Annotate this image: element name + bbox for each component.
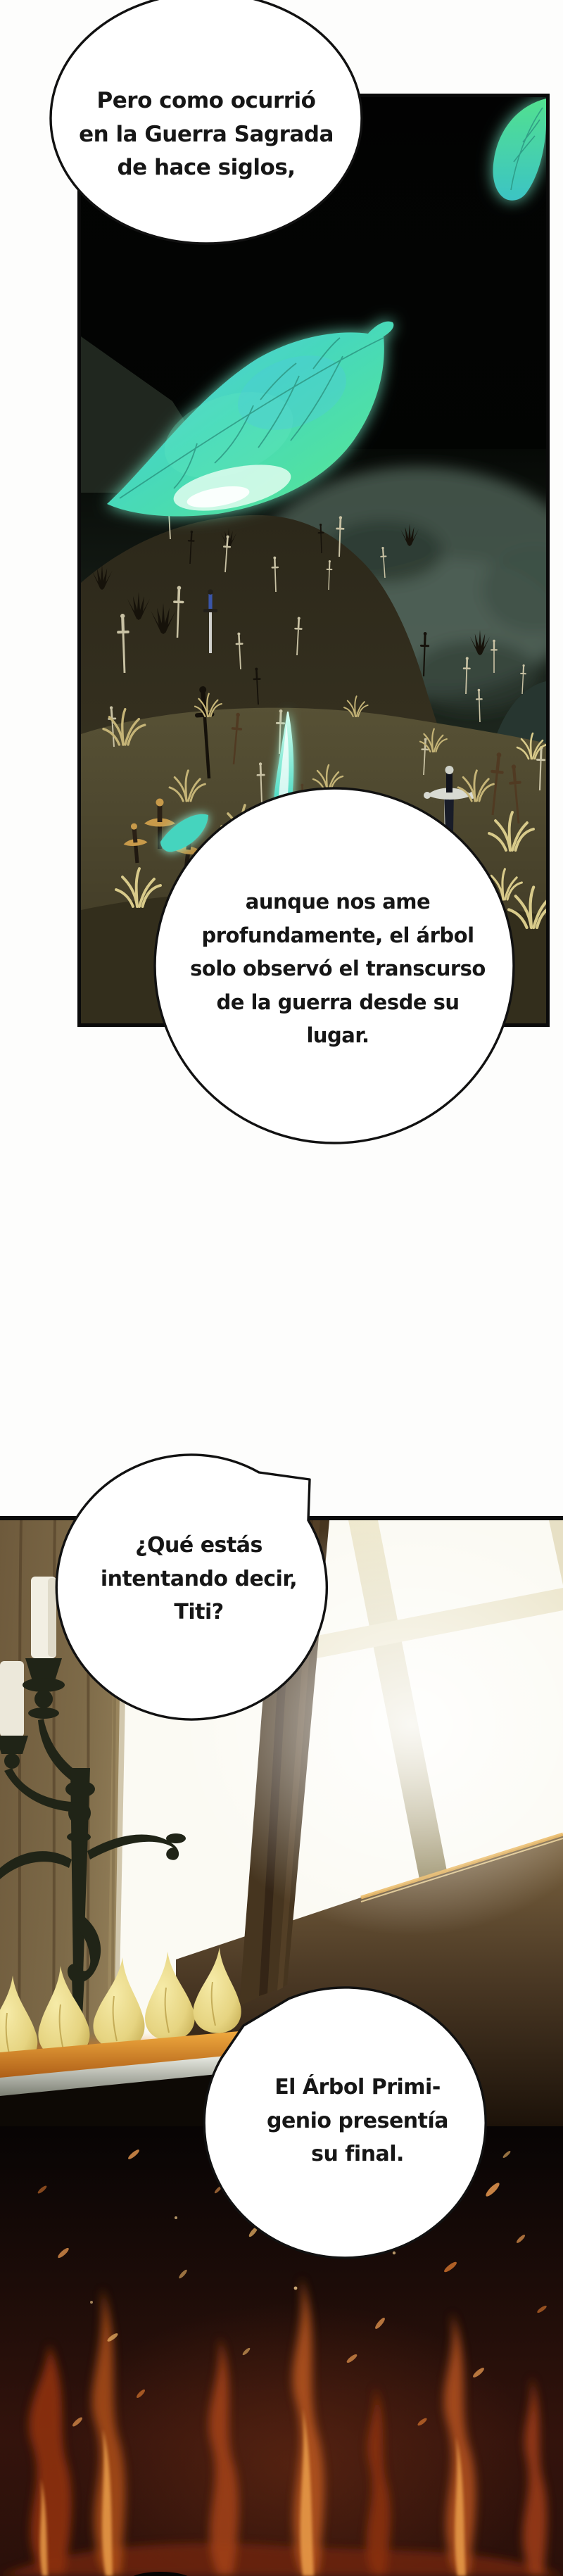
dialog-line: su final. <box>238 2138 477 2171</box>
dialog-line: El Árbol Primi- <box>238 2071 477 2104</box>
dialog-line: intentando decir, <box>77 1562 320 1596</box>
dialog-line: ¿Qué estás <box>77 1529 320 1562</box>
dialog-line: genio presentía <box>238 2104 477 2138</box>
dialog-line: Pero como ocurrió <box>72 84 340 118</box>
dialog-line: profundamente, el árbol <box>169 919 507 953</box>
dialog-line: aunque nos ame <box>169 885 507 919</box>
speech-bubble-4-text: El Árbol Primi- genio presentía su final… <box>238 2071 477 2171</box>
dialog-line: de hace siglos, <box>72 151 340 185</box>
dialog-line: lugar. <box>169 1019 507 1053</box>
speech-bubble-1-text: Pero como ocurrió en la Guerra Sagrada d… <box>72 84 340 185</box>
speech-bubble-3-text: ¿Qué estás intentando decir, Titi? <box>77 1529 320 1629</box>
speech-bubble-2-text: aunque nos ame profundamente, el árbol s… <box>169 885 507 1053</box>
dialog-line: de la guerra desde su <box>169 986 507 1020</box>
dialog-line: en la Guerra Sagrada <box>72 118 340 152</box>
fire-art <box>0 2126 563 2576</box>
panel-fire <box>0 2126 563 2576</box>
war-hill-art <box>81 97 546 1023</box>
dialog-line: Titi? <box>77 1596 320 1629</box>
dialog-line: solo observó el transcurso <box>169 952 507 986</box>
comic-page: Pero como ocurrió en la Guerra Sagrada d… <box>0 0 563 2576</box>
